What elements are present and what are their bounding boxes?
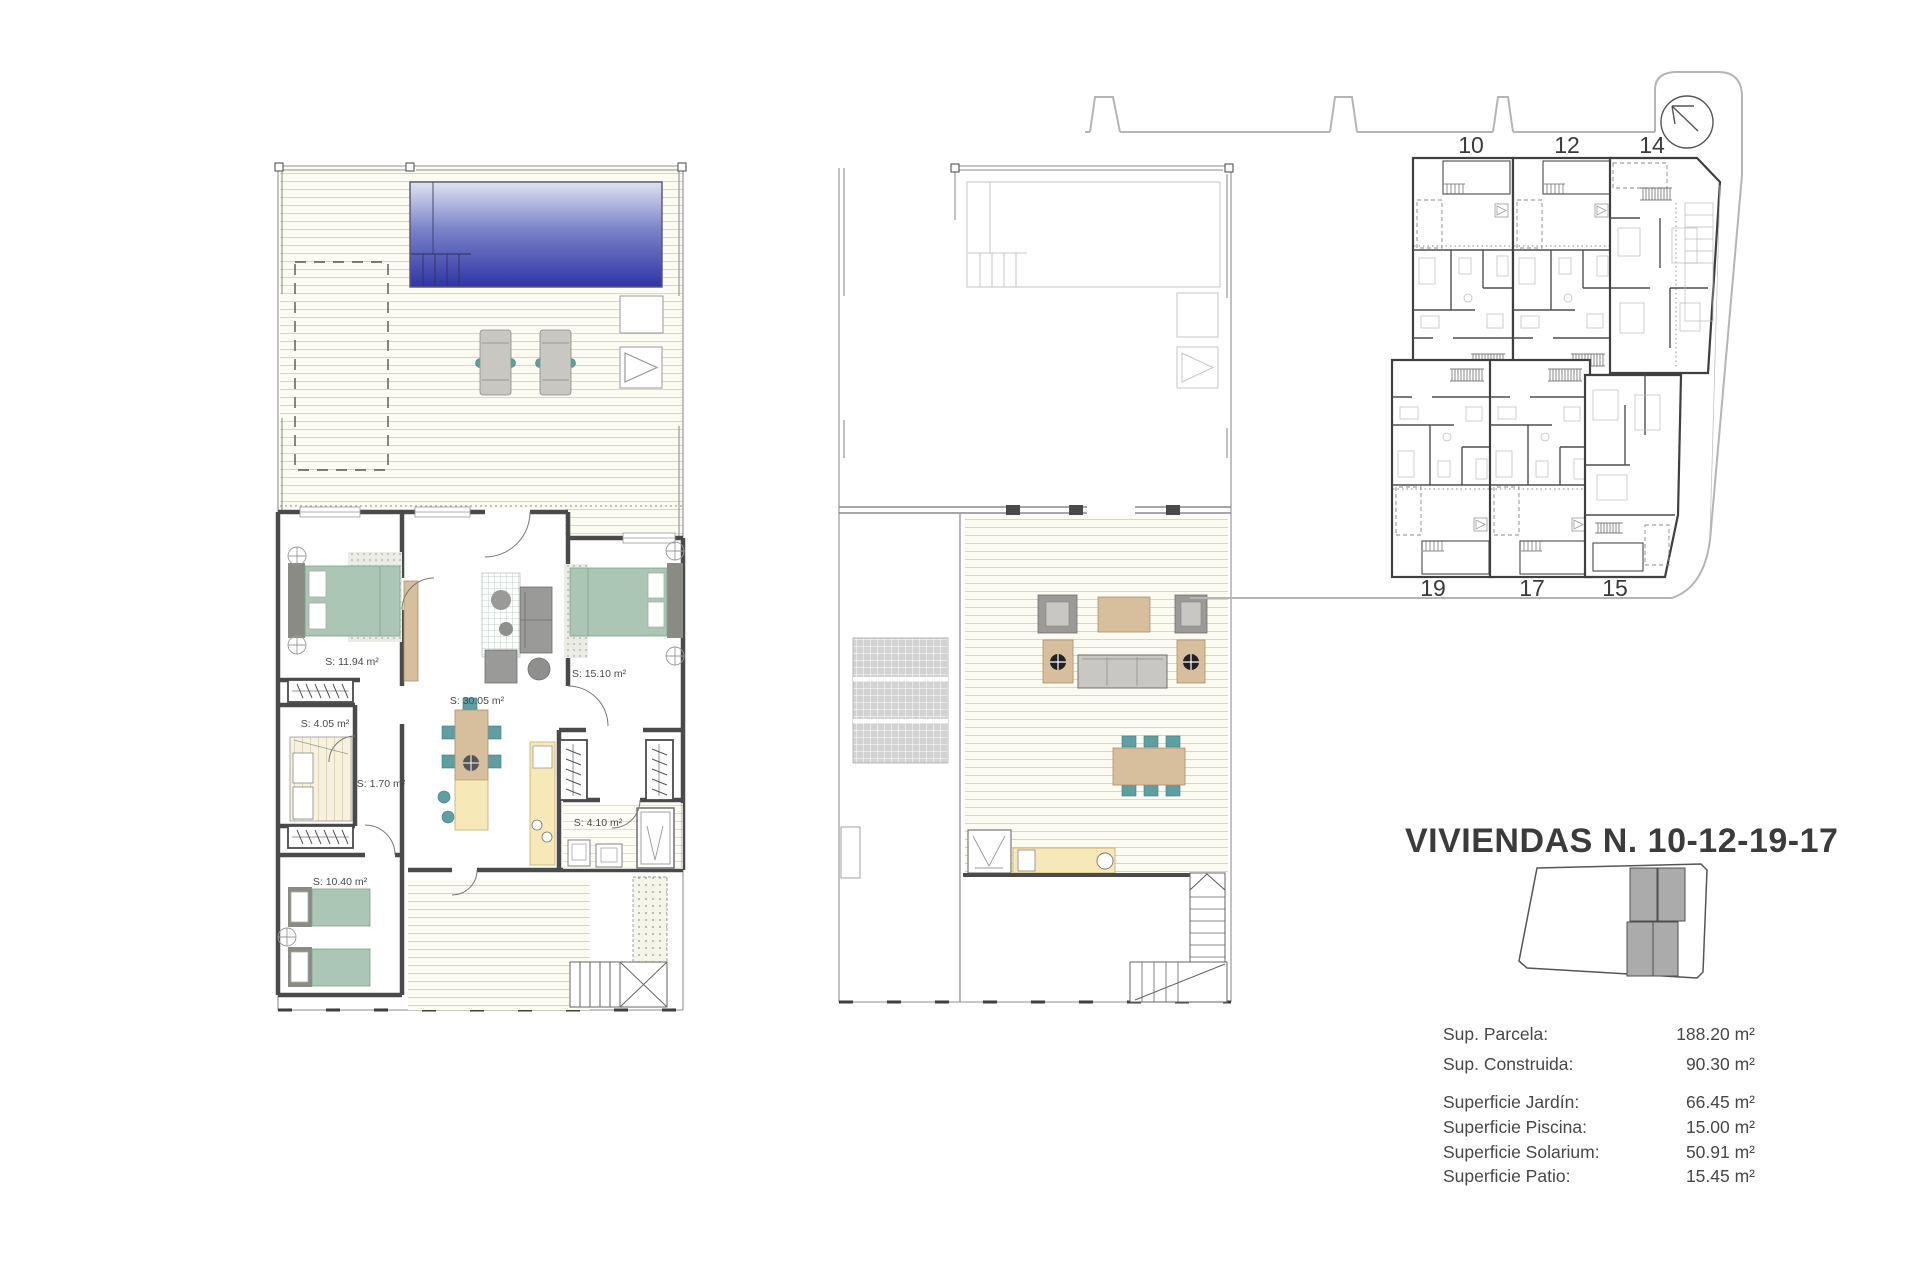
unit-17-plan — [1490, 360, 1590, 577]
area-row: Superficie Jardín: 66.45 m² — [1443, 1092, 1755, 1113]
unit-12-plan — [1513, 158, 1613, 375]
floorplan-sheet: S: 11.94 m² S: 15.10 m² S: 30.05 m² S: 4… — [0, 0, 1920, 1280]
unit-number: 12 — [1554, 132, 1580, 158]
room-label: S: 1.70 m² — [357, 778, 406, 790]
storage-room — [290, 737, 352, 821]
unit-14-plan — [1610, 158, 1720, 373]
room-label: S: 11.94 m² — [325, 656, 379, 668]
unit-number: 17 — [1519, 575, 1545, 601]
wardrobe-icon — [288, 826, 353, 848]
area-value: 188.20 m² — [1676, 1024, 1755, 1045]
rear-patio — [408, 877, 667, 1010]
key-plan — [1505, 858, 1735, 988]
area-row: Sup. Parcela: 188.20 m² — [1443, 1024, 1755, 1045]
living-room — [404, 573, 552, 683]
kitchen-counter — [530, 742, 555, 865]
area-value: 50.91 m² — [1686, 1142, 1755, 1163]
area-row: Sup. Construida: 90.30 m² — [1443, 1054, 1755, 1075]
bathroom — [563, 803, 683, 869]
ceiling-fan-icon — [278, 928, 296, 946]
room-label: S: 4.05 m² — [301, 718, 350, 730]
area-value: 15.45 m² — [1686, 1166, 1755, 1187]
ground-floor-plan: S: 11.94 m² S: 15.10 m² S: 30.05 m² S: 4… — [230, 126, 688, 1016]
area-label: Superficie Piscina: — [1443, 1117, 1587, 1138]
area-row: Superficie Solarium: 50.91 m² — [1443, 1142, 1755, 1163]
bedroom-3 — [278, 887, 370, 987]
area-label: Sup. Parcela: — [1443, 1024, 1548, 1045]
page-title: VIVIENDAS N. 10-12-19-17 — [1405, 822, 1895, 861]
room-label: S: 15.10 m² — [572, 668, 627, 680]
highlighted-unit — [1630, 868, 1657, 921]
bedroom-2 — [564, 542, 684, 665]
unit-number: 10 — [1458, 132, 1484, 158]
wardrobe-icon — [288, 680, 353, 702]
highlighted-unit — [1653, 922, 1678, 976]
area-row: Superficie Piscina: 15.00 m² — [1443, 1117, 1755, 1138]
kitchen-island — [455, 780, 488, 830]
unit-10-plan — [1413, 158, 1513, 375]
highlighted-unit — [1658, 868, 1685, 921]
dining-table — [438, 698, 501, 830]
area-label: Superficie Solarium: — [1443, 1142, 1600, 1163]
hall-cabinet — [404, 581, 418, 681]
compass-icon — [1661, 96, 1713, 148]
swimming-pool — [410, 182, 662, 287]
bedroom-1 — [288, 547, 402, 654]
area-value: 90.30 m² — [1686, 1054, 1755, 1075]
area-label: Superficie Jardín: — [1443, 1092, 1579, 1113]
area-label: Sup. Construida: — [1443, 1054, 1573, 1075]
area-row: Superficie Patio: 15.45 m² — [1443, 1166, 1755, 1187]
area-value: 66.45 m² — [1686, 1092, 1755, 1113]
wardrobe-icon — [646, 740, 673, 800]
unit-number: 14 — [1639, 132, 1665, 158]
unit-number: 19 — [1420, 575, 1446, 601]
unit-19-plan — [1392, 360, 1492, 577]
wardrobe-icon — [560, 740, 587, 800]
highlighted-unit — [1627, 922, 1653, 976]
patio-skylight — [841, 638, 948, 878]
room-label: S: 10.40 m² — [313, 876, 368, 888]
room-label: S: 30.05 m² — [450, 695, 505, 707]
area-value: 15.00 m² — [1686, 1117, 1755, 1138]
solarium-dining-table — [1113, 736, 1185, 796]
site-plan: 10 12 14 19 17 15 — [1080, 55, 1780, 645]
patio-stairs — [570, 962, 667, 1007]
unit-15-plan — [1585, 375, 1681, 577]
stairs — [963, 873, 1227, 1002]
area-label: Superficie Patio: — [1443, 1166, 1570, 1187]
unit-number: 15 — [1602, 575, 1628, 601]
room-label: S: 4.10 m² — [574, 817, 623, 829]
